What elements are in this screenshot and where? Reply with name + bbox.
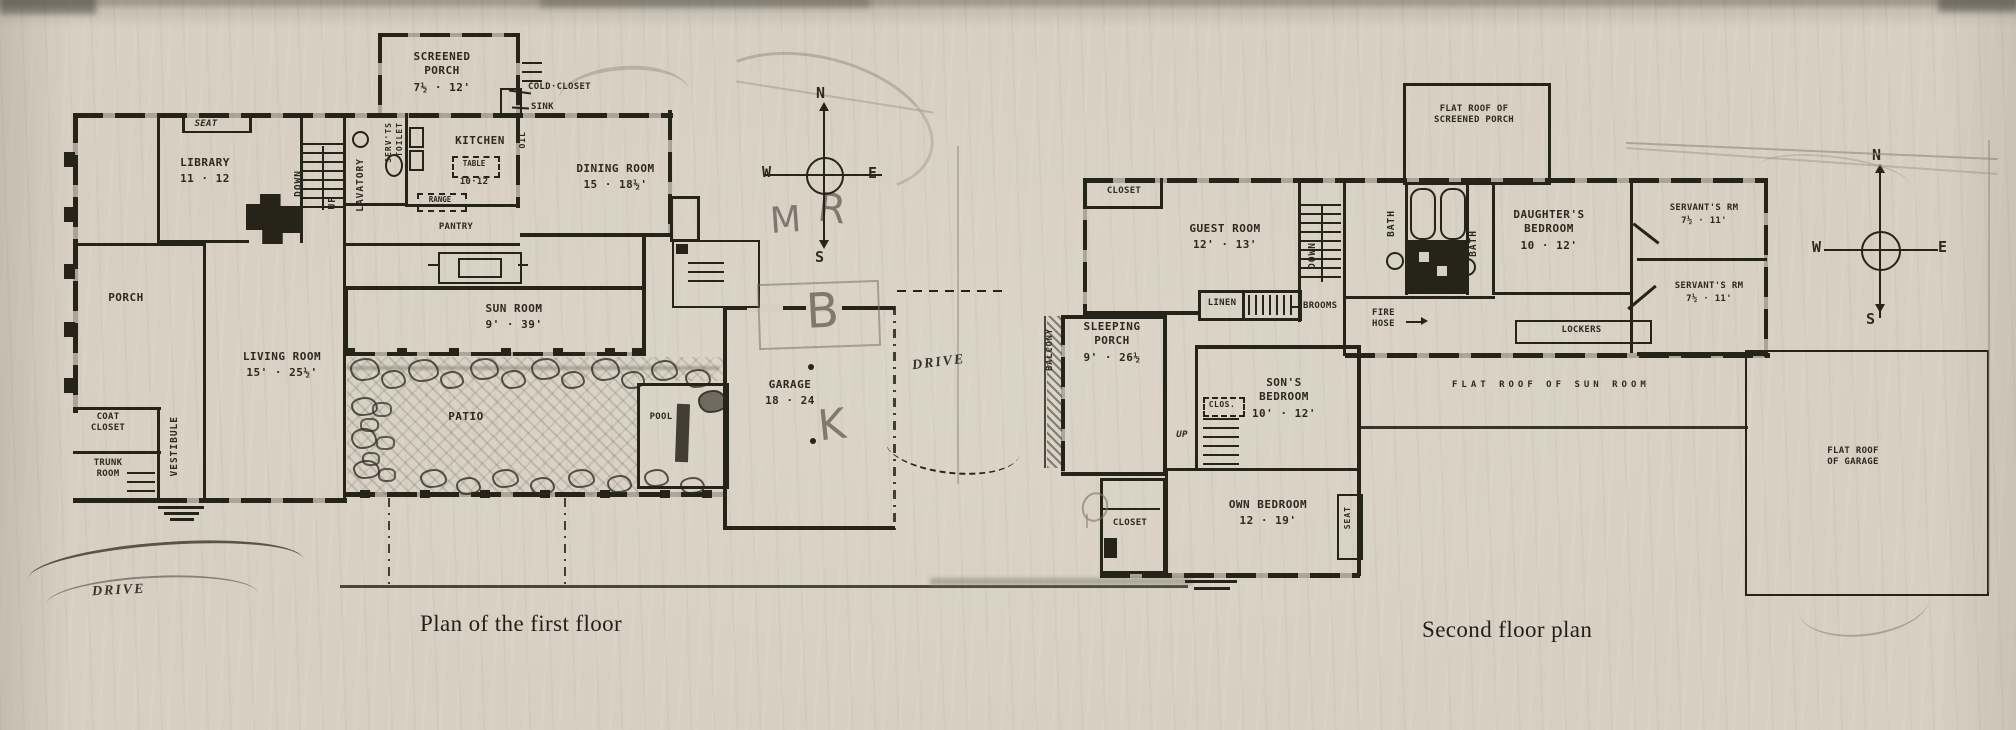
leader-line — [1406, 321, 1421, 323]
room-label-servants-room: SERVANT'S RM 7½ · 11' — [1648, 203, 1760, 228]
room-name: GUEST ROOM — [1189, 222, 1260, 235]
entry-steps — [1185, 580, 1237, 583]
wall — [1299, 290, 1302, 320]
compass-label-east: E — [1938, 240, 1947, 255]
wall — [1083, 206, 1163, 209]
flat-roof-screened-porch — [1403, 83, 1551, 185]
toilet-fixture — [1386, 252, 1404, 270]
leader-line — [1292, 306, 1301, 308]
room-label-closet: CLOSET — [1092, 186, 1156, 197]
parapet — [1358, 426, 1748, 429]
pencil-scribble — [1086, 514, 1088, 528]
wall — [1764, 183, 1768, 357]
caption-second-floor: Second floor plan — [1422, 618, 1592, 641]
compass-circle — [1861, 231, 1901, 271]
room-dims: 7½ · 11' — [1653, 294, 1765, 305]
room-label-sleeping-porch: SLEEPING PORCH 9' · 26½ — [1070, 320, 1154, 365]
second-floor-plan: FLAT ROOF OF SCREENED PORCH CLOSET GUEST… — [0, 0, 2016, 730]
bathtub — [1410, 188, 1436, 240]
room-dims: 7½ · 11' — [1648, 216, 1760, 227]
label-lockers: LOCKERS — [1519, 325, 1644, 336]
wall — [1637, 258, 1767, 261]
room-label-bath: BATH — [1469, 230, 1479, 257]
wall — [1198, 318, 1302, 321]
label-fire-hose: FIRE HOSE — [1372, 308, 1408, 331]
room-label-daughters-bedroom: DAUGHTER'S BEDROOM 10 · 12' — [1503, 208, 1595, 253]
room-dims: 10 · 12' — [1503, 239, 1595, 253]
room-dims: 12' · 13' — [1163, 238, 1287, 252]
room-label-sons-bedroom: SON'S BEDROOM 10' · 12' — [1238, 376, 1330, 421]
room-dims: 9' · 26½ — [1070, 351, 1154, 365]
compass-arrow-south — [1875, 304, 1885, 313]
wall — [1195, 345, 1360, 349]
leader-arrow — [1421, 317, 1428, 325]
wall — [1083, 178, 1768, 183]
label-brooms: BROOMS — [1303, 301, 1337, 312]
pencil-line — [1988, 140, 1990, 592]
wall — [1061, 315, 1165, 319]
label-seat: SEAT — [1344, 506, 1353, 529]
room-dims: 12 · 19' — [1200, 514, 1336, 528]
stair-rail — [1321, 206, 1323, 282]
room-name: DAUGHTER'S BEDROOM — [1513, 208, 1584, 235]
wall — [1100, 508, 1160, 510]
flat-roof-garage — [1745, 350, 1989, 596]
wall — [1160, 178, 1163, 209]
toilet-fixture — [1458, 258, 1476, 276]
bath-fixture — [1437, 266, 1447, 276]
wall — [1163, 315, 1167, 475]
room-name: SERVANT'S RM — [1670, 203, 1739, 213]
wall — [1492, 183, 1495, 295]
label-linen: LINEN — [1201, 298, 1243, 309]
bath-fixture — [1419, 252, 1429, 262]
wall — [1492, 292, 1632, 295]
room-name: SLEEPING PORCH — [1084, 320, 1141, 347]
wall — [1061, 472, 1167, 476]
bathtub — [1440, 188, 1466, 240]
wall — [1165, 468, 1360, 471]
broom-closet-slats — [1248, 295, 1296, 315]
pencil-arc — [1756, 147, 1912, 205]
wall — [1343, 178, 1346, 356]
room-label-closet: CLOSET — [1104, 518, 1156, 529]
label-flat-roof-sun-room: FLAT ROOF OF SUN ROOM — [1452, 380, 1650, 391]
parapet — [1358, 353, 1361, 429]
room-label-guest-room: GUEST ROOM 12' · 13' — [1163, 222, 1287, 253]
wall — [1100, 573, 1360, 578]
room-name: SON'S BEDROOM — [1259, 376, 1309, 403]
room-label-own-bedroom: OWN BEDROOM 12 · 19' — [1200, 498, 1336, 529]
wall — [1083, 178, 1087, 316]
label-clos: CLOS. — [1205, 400, 1239, 410]
compass-label-south: S — [1866, 312, 1875, 327]
label-balcony: BALCONY — [1046, 328, 1055, 371]
door-leaf — [1104, 538, 1117, 558]
label-up: UP — [1170, 430, 1194, 441]
room-label-bath: BATH — [1387, 210, 1397, 237]
label-flat-roof-garage: FLAT ROOF OF GARAGE — [1822, 446, 1884, 469]
compass-label-west: W — [1812, 240, 1821, 255]
room-label-servants-room: SERVANT'S RM 7½ · 11' — [1653, 281, 1765, 306]
label-flat-roof-screened-porch: FLAT ROOF OF SCREENED PORCH — [1424, 104, 1524, 127]
scanned-floor-plan-page: M R B K N W E S SCREENED PORCH 7½ · 12' … — [0, 0, 2016, 730]
label-down: DOWN — [1308, 242, 1318, 269]
wall — [1345, 296, 1495, 299]
wall — [1195, 345, 1198, 470]
room-name: SERVANT'S RM — [1675, 281, 1744, 291]
wall — [1345, 353, 1770, 358]
room-dims: 10' · 12' — [1238, 407, 1330, 421]
wall — [1198, 290, 1302, 293]
entry-steps — [1194, 587, 1230, 590]
wall — [1165, 468, 1168, 576]
stairs — [1203, 418, 1239, 468]
compass-label-north: N — [1872, 148, 1881, 163]
room-name: OWN BEDROOM — [1229, 498, 1307, 511]
